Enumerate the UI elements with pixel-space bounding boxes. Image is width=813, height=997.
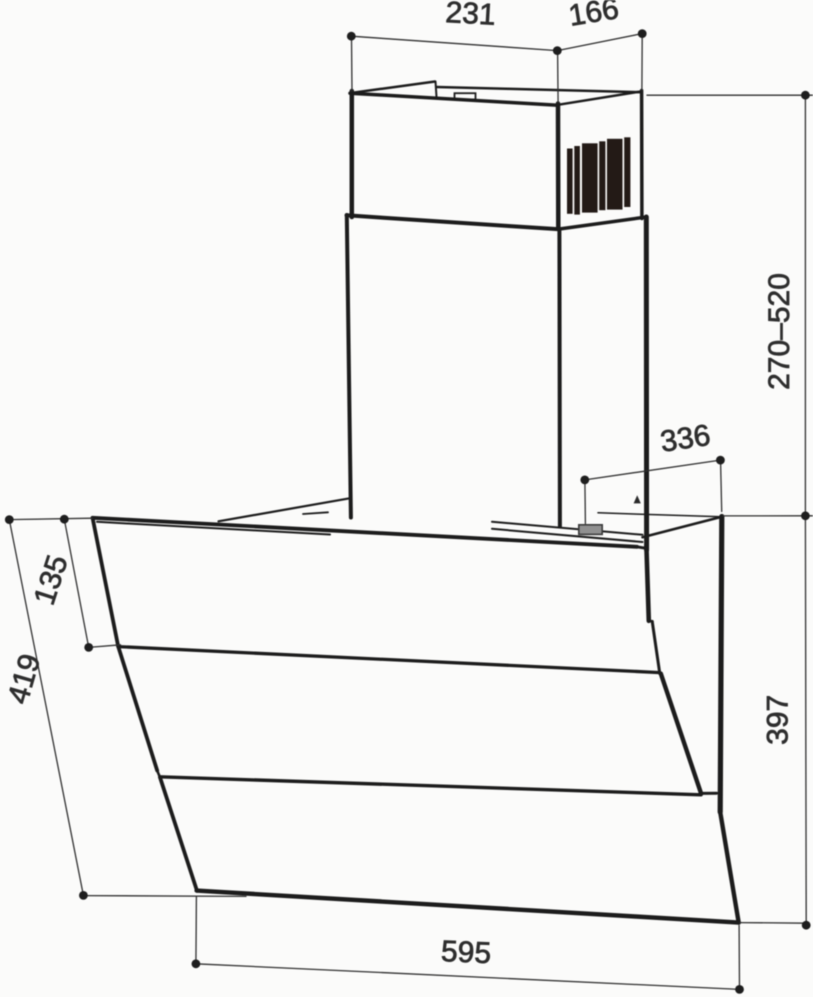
svg-text:419: 419 [2, 650, 48, 707]
svg-text:336: 336 [658, 419, 712, 459]
svg-text:135: 135 [28, 551, 75, 609]
svg-text:231: 231 [445, 0, 497, 32]
svg-text:166: 166 [566, 0, 621, 33]
svg-text:595: 595 [440, 935, 492, 970]
svg-text:397: 397 [762, 695, 795, 745]
svg-text:270–520: 270–520 [763, 273, 796, 390]
